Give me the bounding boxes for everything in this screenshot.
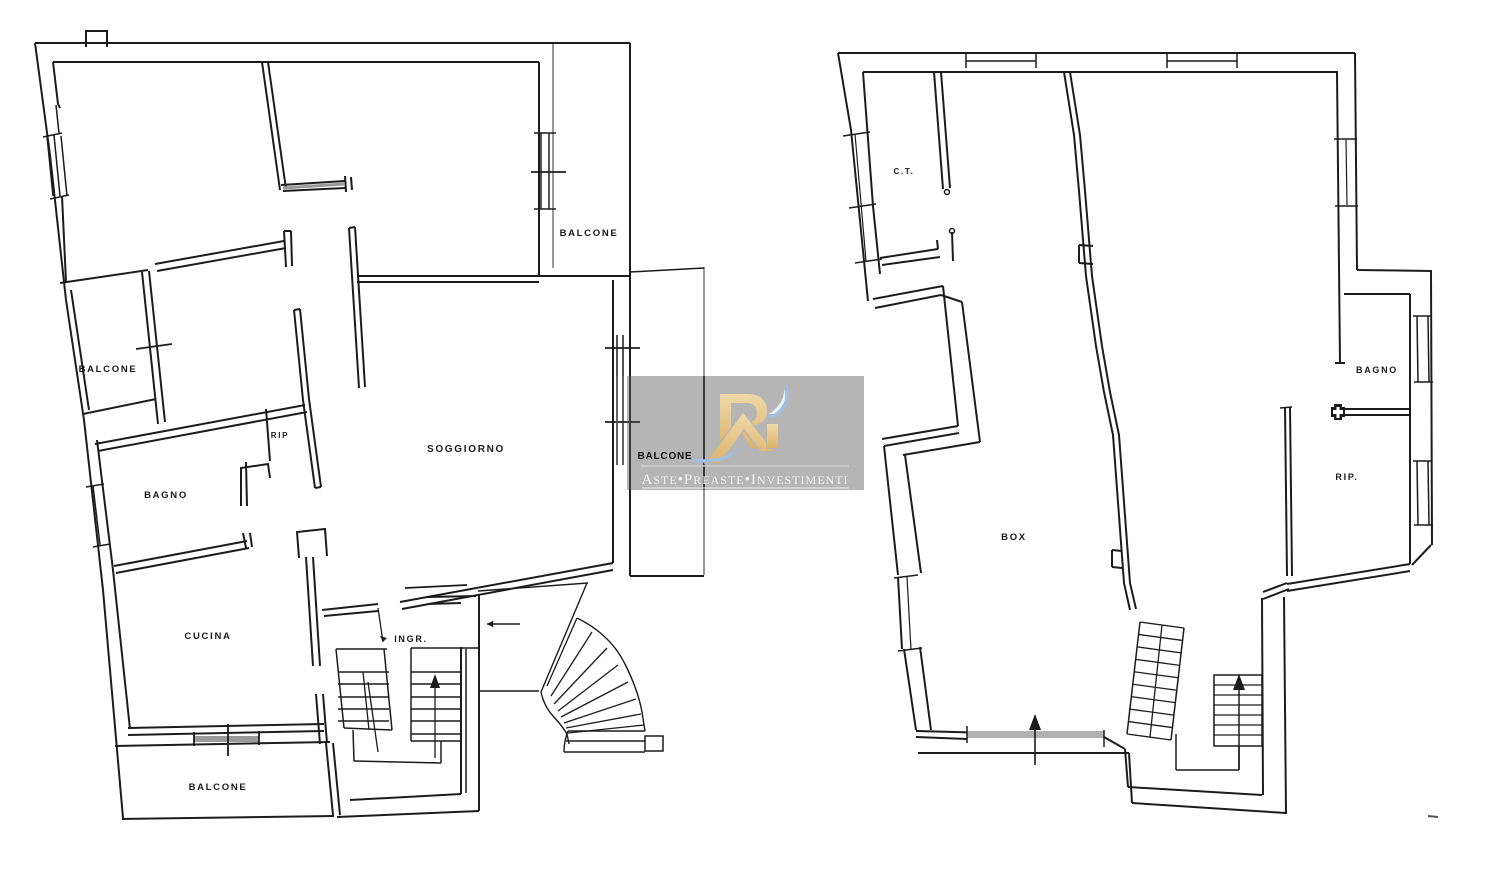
svg-text:BAGNO: BAGNO [144, 490, 188, 501]
svg-text:CUCINA: CUCINA [184, 631, 231, 642]
svg-text:BALCONE: BALCONE [79, 364, 138, 375]
svg-text:BALCONE: BALCONE [560, 228, 619, 239]
svg-text:INGR.: INGR. [394, 634, 428, 644]
svg-text:BOX: BOX [1001, 532, 1027, 543]
svg-text:BAGNO: BAGNO [1356, 365, 1398, 375]
svg-text:RIP: RIP [271, 431, 289, 440]
svg-text:BALCONE: BALCONE [637, 451, 692, 462]
svg-text:ASTE•PREASTE•INVESTIMENTI: ASTE•PREASTE•INVESTIMENTI [641, 472, 848, 488]
svg-text:BALCONE: BALCONE [189, 782, 248, 793]
svg-text:RIP.: RIP. [1335, 472, 1358, 482]
svg-text:SOGGIORNO: SOGGIORNO [427, 444, 505, 455]
svg-text:C.T.: C.T. [893, 167, 914, 176]
